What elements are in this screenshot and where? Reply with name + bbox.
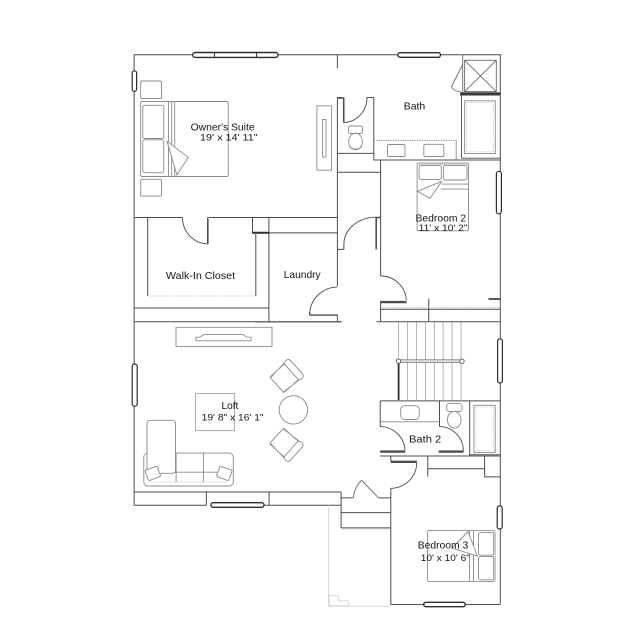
svg-text:19' 8" x 16' 1": 19' 8" x 16' 1" xyxy=(202,412,264,422)
svg-text:Loft: Loft xyxy=(221,401,238,412)
svg-text:Walk-In Closet: Walk-In Closet xyxy=(166,271,235,282)
svg-text:Bedroom 3: Bedroom 3 xyxy=(418,541,469,552)
svg-text:19' x 14' 11": 19' x 14' 11" xyxy=(200,133,258,143)
svg-text:Bath: Bath xyxy=(404,101,426,112)
svg-text:Laundry: Laundry xyxy=(284,270,322,281)
svg-text:11' x 10' 2": 11' x 10' 2" xyxy=(419,223,468,233)
svg-text:10' x 10' 6": 10' x 10' 6" xyxy=(421,553,470,563)
svg-text:Bath 2: Bath 2 xyxy=(409,434,441,445)
